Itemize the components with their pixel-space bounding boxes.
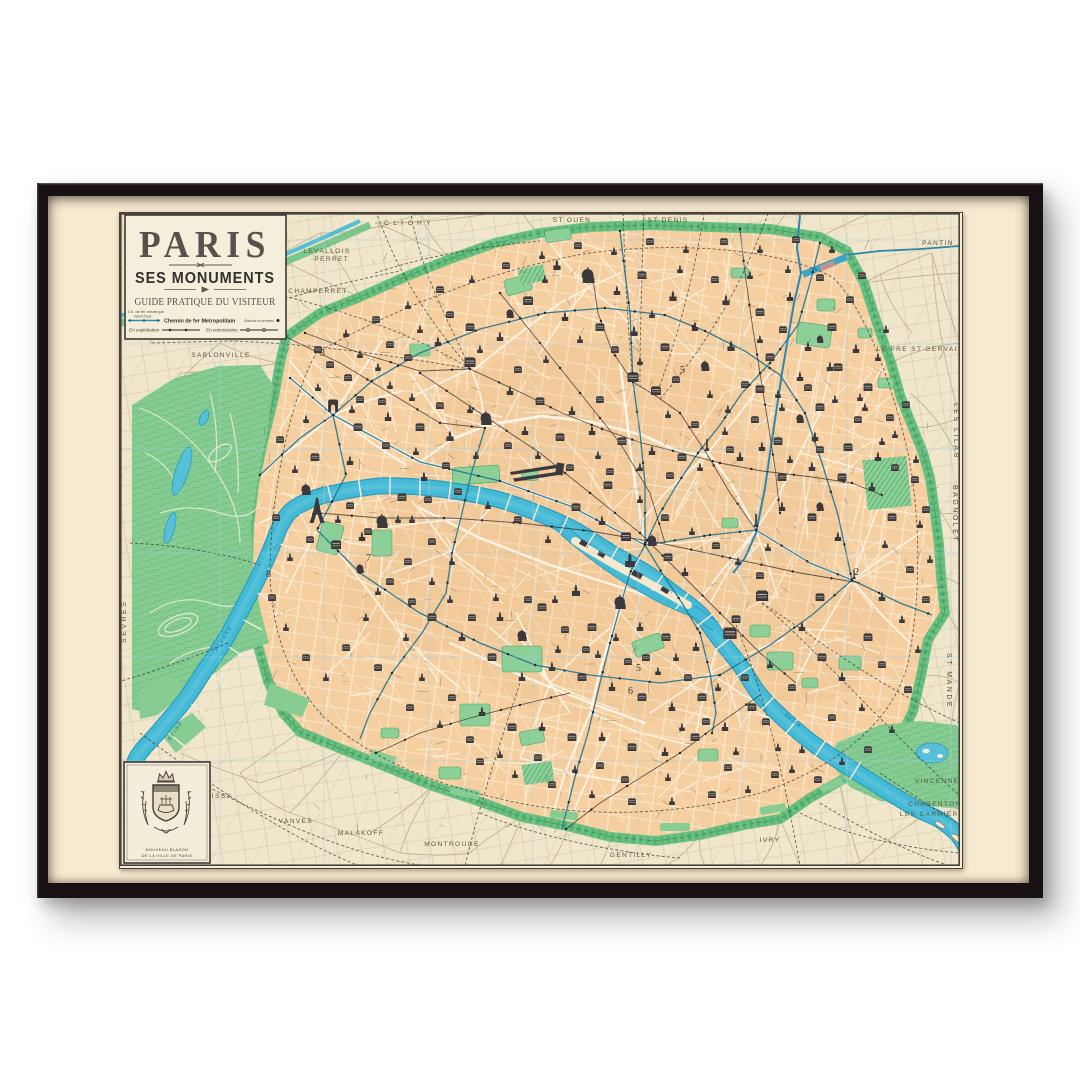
svg-text:PANTIN: PANTIN: [922, 240, 954, 247]
svg-text:ST DENIS: ST DENIS: [647, 217, 688, 224]
svg-text:C L I C H Y: C L I C H Y: [384, 220, 432, 227]
svg-text:GENTILLY: GENTILLY: [610, 852, 652, 859]
svg-text:NOUVEAU BLASON: NOUVEAU BLASON: [146, 847, 189, 852]
svg-text:ISSY: ISSY: [212, 793, 232, 800]
svg-text:LE PRE ST GERVAIS: LE PRE ST GERVAIS: [876, 346, 960, 353]
svg-text:En exploitation: En exploitation: [129, 328, 160, 333]
svg-text:IVRY: IVRY: [760, 837, 781, 844]
svg-text:3: 3: [320, 348, 325, 359]
svg-text:8: 8: [266, 569, 271, 580]
svg-text:Chemin de fer Metropolitain: Chemin de fer Metropolitain: [164, 319, 235, 325]
svg-text:Nord-Sud: Nord-Sud: [134, 314, 151, 319]
svg-text:MONTROUGE: MONTROUGE: [424, 841, 480, 848]
svg-text:CHAMPERRET: CHAMPERRET: [288, 288, 348, 295]
svg-text:CHARENTON: CHARENTON: [908, 801, 960, 808]
svg-text:En construction: En construction: [206, 328, 238, 333]
svg-text:DE LA VILLE DE PARIS: DE LA VILLE DE PARIS: [142, 853, 193, 858]
svg-text:BAGNOLET: BAGNOLET: [951, 485, 958, 543]
svg-text:ST OUEN: ST OUEN: [553, 217, 592, 224]
svg-text:5: 5: [636, 663, 641, 674]
svg-text:LES CARRIERES: LES CARRIERES: [900, 811, 960, 818]
svg-text:LEVALLOIS: LEVALLOIS: [303, 248, 350, 255]
svg-text:5: 5: [680, 365, 685, 376]
svg-text:6: 6: [628, 686, 633, 697]
svg-text:2: 2: [854, 567, 859, 578]
svg-text:SABLONVILLE: SABLONVILLE: [191, 352, 250, 359]
svg-text:Stations et arrivees: Stations et arrivees: [244, 319, 274, 323]
svg-text:SES MONUMENTS: SES MONUMENTS: [135, 270, 275, 287]
svg-text:SEVRES: SEVRES: [121, 600, 128, 643]
svg-text:7: 7: [366, 553, 371, 564]
svg-text:-PERRET: -PERRET: [311, 256, 349, 263]
svg-text:VINCENNES: VINCENNES: [915, 778, 960, 785]
svg-text:LES LILAS: LES LILAS: [952, 403, 959, 460]
svg-text:PARIS: PARIS: [139, 224, 271, 266]
svg-text:ST MANDE: ST MANDE: [945, 653, 952, 709]
svg-text:MALAKOFF: MALAKOFF: [338, 830, 384, 837]
svg-text:VANVES: VANVES: [279, 818, 313, 825]
svg-text:GUIDE PRATIQUE DU VISITEUR: GUIDE PRATIQUE DU VISITEUR: [135, 297, 276, 308]
